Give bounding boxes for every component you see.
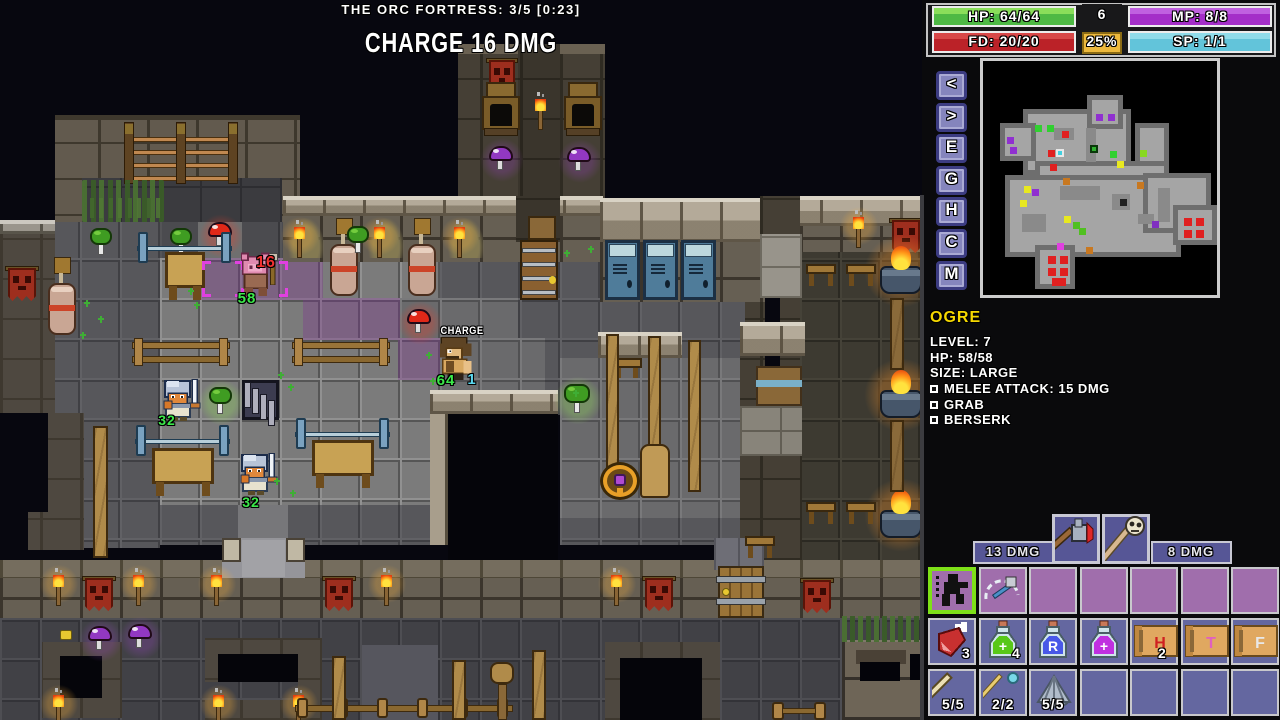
svg-text:T: T bbox=[1206, 635, 1216, 652]
svg-text:+: + bbox=[1100, 638, 1108, 654]
svg-text:F: F bbox=[1255, 635, 1265, 652]
svg-text:+: + bbox=[999, 638, 1007, 654]
svg-text:R: R bbox=[1048, 638, 1058, 654]
